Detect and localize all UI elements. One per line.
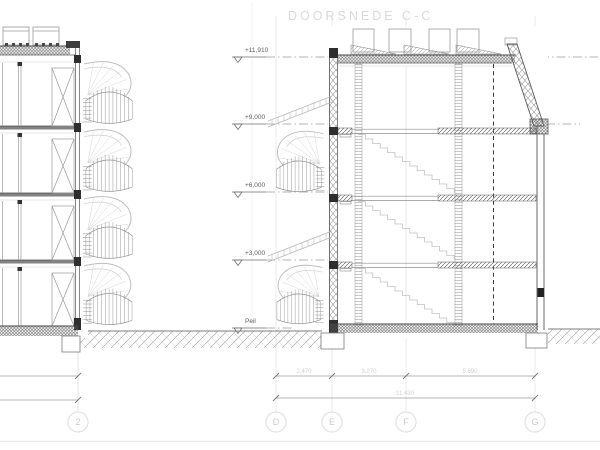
- dim-total: 11,430: [396, 391, 415, 397]
- sheet-title: DOORSNEDE C-C: [288, 9, 433, 23]
- dimension-lines: 2,470 3,270 5,690 11,430: [0, 369, 538, 403]
- grid-label: D: [273, 417, 280, 427]
- level-label: +6,000: [245, 182, 265, 189]
- level-label: +3,000: [245, 250, 265, 257]
- cut-wall-left: [329, 48, 338, 334]
- section-drawing: DOORSNEDE C-C +11,910 +9,000 +6,000 +3,0…: [0, 0, 600, 450]
- level-label: Peil: [245, 318, 256, 325]
- grid-label: F: [403, 417, 409, 427]
- ground-slab: [0, 326, 80, 352]
- level-label: +11,910: [245, 47, 269, 54]
- grid-label: E: [329, 417, 335, 427]
- grid-bubbles: 2 D E F G: [68, 412, 545, 432]
- dim-segment: 2,470: [296, 369, 312, 375]
- spiral-staircase: [83, 62, 132, 325]
- spiral-staircase: [276, 131, 324, 324]
- grid-label: G: [531, 417, 538, 427]
- level-label: +9,000: [245, 114, 265, 121]
- dimension-ticks: [75, 373, 538, 403]
- drawing-sheet: DOORSNEDE C-C +11,910 +9,000 +6,000 +3,0…: [0, 0, 600, 450]
- left-building-section: [0, 26, 132, 352]
- grid-label: 2: [75, 417, 80, 427]
- right-building-section: [268, 26, 548, 349]
- dim-segment: 5,690: [462, 369, 478, 375]
- dim-segment: 3,270: [361, 369, 377, 375]
- roof-slab: [338, 55, 516, 63]
